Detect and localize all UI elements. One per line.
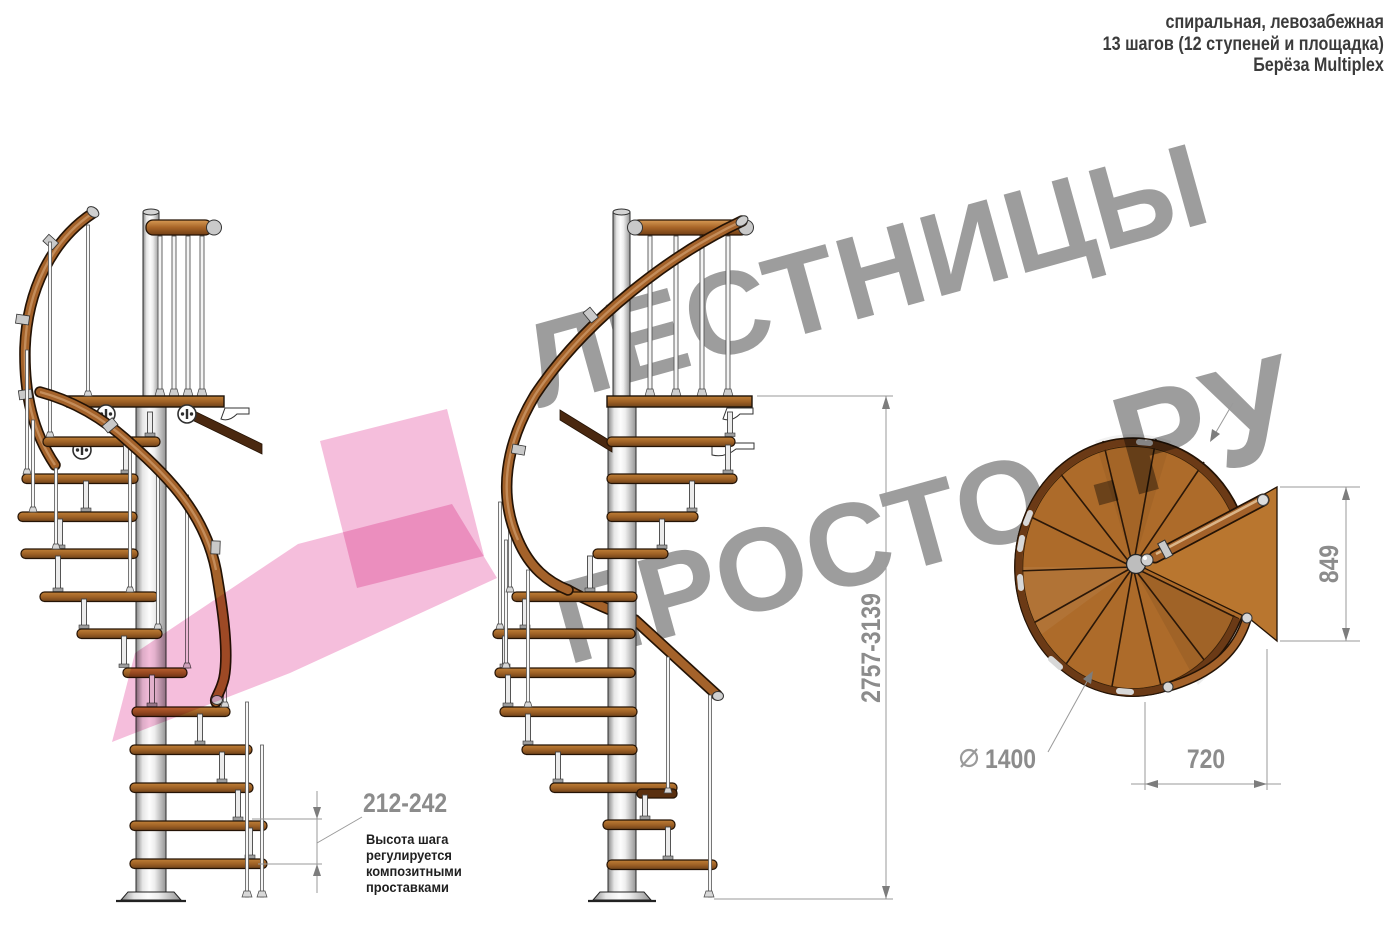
drawing-page: ЛЕСТНИЦЫ ПРОСТО (0, 0, 1400, 936)
platform-width-label: 720 (1187, 744, 1225, 774)
spec-type: спиральная, левозабежная (1103, 12, 1384, 34)
platform-depth-label: 849 (1314, 545, 1344, 583)
dimension-layer: 2757-3139 212-242 849 720 1400 Высота ша… (0, 0, 1400, 936)
total-height-label: 2757-3139 (856, 593, 886, 703)
diameter-label: 1400 (985, 744, 1036, 774)
dimension-arrowheads (313, 396, 1350, 899)
spec-header: спиральная, левозабежная 13 шагов (12 ст… (1103, 12, 1384, 77)
svg-text:Высота шага: Высота шага (366, 832, 449, 848)
step-height-label: 212-242 (363, 788, 447, 818)
svg-text:регулируется: регулируется (366, 848, 452, 864)
svg-text:проставками: проставками (366, 880, 449, 896)
step-height-note: Высота шага регулируется композитными пр… (366, 832, 462, 896)
svg-text:композитными: композитными (366, 864, 462, 880)
spec-material: Берёза Multiplex (1103, 55, 1384, 77)
spec-steps: 13 шагов (12 ступеней и площадка) (1103, 34, 1384, 56)
